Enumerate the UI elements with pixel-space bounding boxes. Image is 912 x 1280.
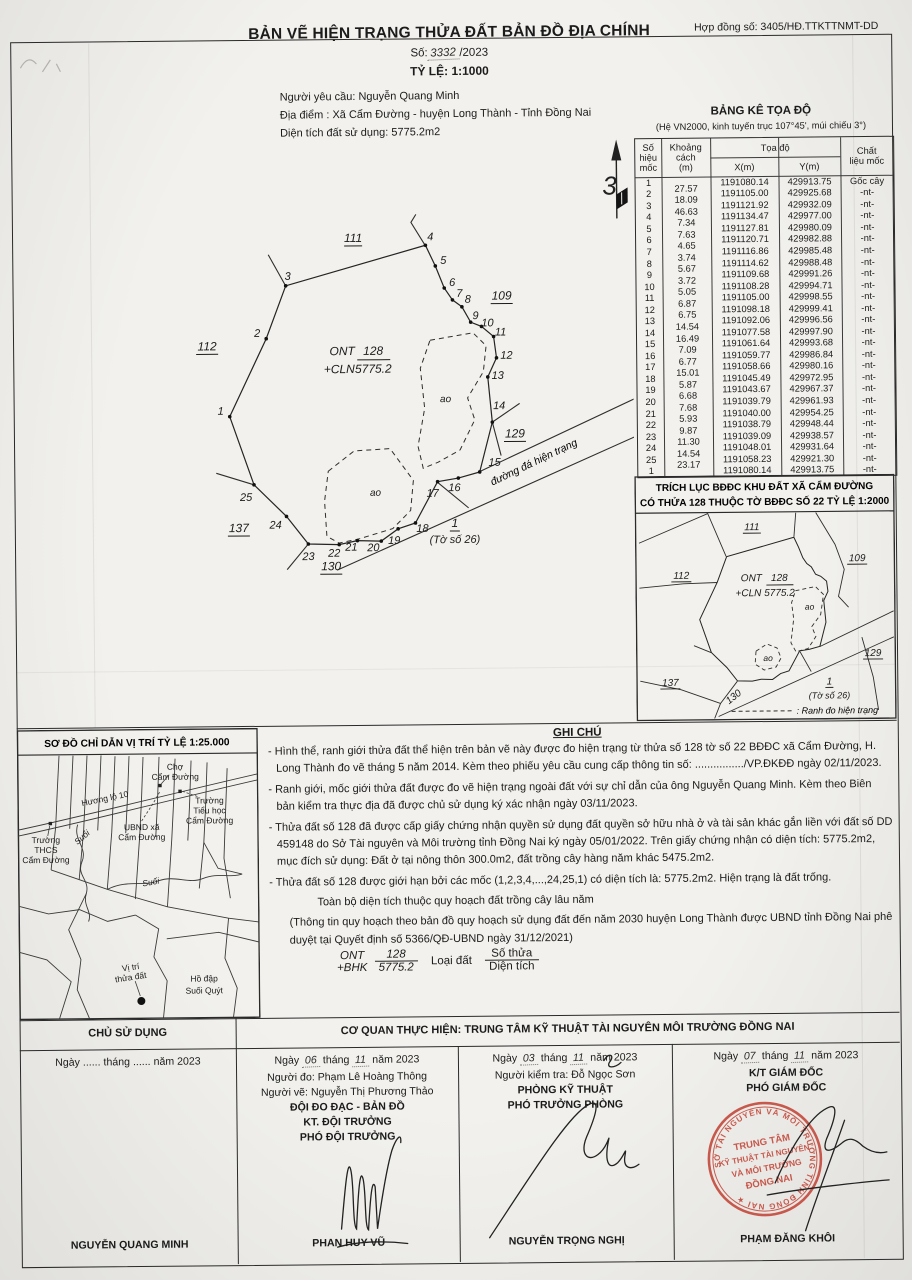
point-x: 1191080.14 <box>720 177 769 188</box>
point-material: -nt- <box>860 222 874 232</box>
segment-distance: 4.65 <box>678 241 696 251</box>
neighbor-parcel-label: 112 <box>673 571 689 582</box>
vertex-dot <box>264 337 268 341</box>
point-y: 429967.37 <box>789 384 833 395</box>
sketch-label: THCS <box>34 845 58 855</box>
vertex-dot <box>451 298 455 302</box>
point-x: 1191092.06 <box>722 315 771 326</box>
vertex-label: 9 <box>472 310 478 322</box>
sketch-title: SƠ ĐỒ CHỈ DẪN VỊ TRÍ TỶ LỆ 1:25.000 <box>44 735 230 750</box>
vertex-label: 25 <box>239 492 253 504</box>
point-x: 1191114.62 <box>722 257 769 268</box>
contract-number: Hợp đồng số: 3405/HĐ.TTKTTNMT-DD <box>694 20 894 34</box>
segment-distance: 23.17 <box>677 460 700 470</box>
point-id: 17 <box>645 362 655 372</box>
segment-distance: 7.09 <box>679 345 697 355</box>
boundary-line <box>640 680 720 704</box>
vertex-label: 3 <box>284 271 291 283</box>
scanned-document: BẢN VẼ HIỆN TRẠNG THỬA ĐẤT BẢN ĐỒ ĐỊA CH… <box>0 0 912 1280</box>
signature-underline <box>338 1242 408 1248</box>
segment-distance: 7.68 <box>679 402 697 412</box>
boundary-extension <box>411 214 425 245</box>
table-header-cell: Chấtliệu mốc <box>841 146 893 167</box>
road-edge <box>820 611 894 647</box>
vertex-label: 11 <box>495 326 507 338</box>
segment-distance: 27.57 <box>674 183 697 193</box>
segment-distance: 5.67 <box>678 264 696 274</box>
main-parcel-drawing: 111 112 109 129 137 130 1 (Tờ số 26) ao … <box>10 36 637 729</box>
point-material: -nt- <box>862 406 876 416</box>
neighbor-parcel-label: 130 <box>321 559 341 573</box>
segment-distance: 6.68 <box>679 391 697 401</box>
vertex-label: 17 <box>427 488 440 500</box>
point-material: -nt- <box>860 199 874 209</box>
vertex-label: 1 <box>218 406 224 418</box>
signature-phan-huy-vu <box>341 1137 402 1230</box>
vertex-dot <box>478 470 482 474</box>
stream-label: Suối <box>141 875 161 888</box>
point-material: -nt- <box>862 360 876 370</box>
point-material: -nt- <box>861 303 875 313</box>
road-label: đường đá hiện trạng <box>489 437 580 489</box>
vertex-label: 10 <box>481 317 494 329</box>
note-item: Toàn bộ diện tích thuộc quy hoạch đất tr… <box>265 889 893 912</box>
point-id: 20 <box>645 397 655 407</box>
point-material: -nt- <box>861 279 875 289</box>
neighbor-parcel-label: 137 <box>662 678 679 689</box>
point-x: 1191105.00 <box>722 292 770 303</box>
point-id: 11 <box>645 293 655 303</box>
formula-label: Loại đất <box>431 954 472 966</box>
vertex-dot <box>396 527 400 531</box>
note-item: - Hình thể, ranh giới thửa đất thể hiện … <box>264 738 892 779</box>
segment-distance: 6.75 <box>678 310 696 320</box>
parcel-polygon-group: 1234567891011121314151617181920212223242… <box>216 230 515 563</box>
segment-distance: 5.93 <box>679 414 697 424</box>
boundary-line <box>167 932 259 943</box>
neighbor-parcel-label: 129 <box>865 648 882 659</box>
segment-distance: 15.01 <box>676 368 699 378</box>
neighbor-parcel-label: 109 <box>492 288 512 302</box>
point-y: 429999.41 <box>789 303 833 314</box>
vertex-dot <box>460 305 464 309</box>
point-x: 1191109.68 <box>721 269 769 280</box>
extract-title-line2: CÓ THỬA 128 THUỘC TỜ BĐĐC SỐ 22 TỶ LỆ 1:… <box>640 493 890 509</box>
note-item: - Thửa đất số 128 được giới hạn bởi các … <box>265 868 893 891</box>
point-y: 429931.64 <box>790 441 834 452</box>
coord-table-title: BẢNG KÊ TỌA ĐỘ <box>631 104 891 118</box>
table-grid-line <box>710 156 840 158</box>
point-x: 1191043.67 <box>722 384 771 395</box>
segment-distance: 14.54 <box>677 448 700 458</box>
svg-text:5775.2: 5775.2 <box>764 588 795 599</box>
point-y: 429985.48 <box>788 245 832 256</box>
point-y: 429986.84 <box>789 349 833 360</box>
segment-distance: 6.87 <box>678 298 696 308</box>
vertex-label: 12 <box>500 350 512 362</box>
point-id: 21 <box>646 408 656 418</box>
vertex-dot <box>337 543 341 547</box>
segment-distance: 5.87 <box>679 379 697 389</box>
parcel-id-block: ONT 128 +CLN 5775.2 <box>324 344 392 377</box>
point-y: 429988.48 <box>788 257 832 268</box>
segment-distance: 9.87 <box>679 425 697 435</box>
sheet-parcel-label: 1 <box>451 516 458 530</box>
point-y: 429998.55 <box>789 291 833 302</box>
sheet-note-label: (Tờ số 26) <box>809 690 851 700</box>
vertex-dot <box>436 480 440 484</box>
table-grid-line <box>710 139 714 477</box>
segment-distance: 3.72 <box>678 275 696 285</box>
segment-distance: 16.49 <box>676 333 699 343</box>
svg-text:3: 3 <box>602 170 617 200</box>
vertex-label: 4 <box>427 231 433 243</box>
segment-distance: 14.54 <box>676 322 699 332</box>
svg-text:128: 128 <box>771 573 788 584</box>
extract-legend: : Ranh đo hiện trạng <box>732 705 879 716</box>
vertex-dot <box>457 476 461 480</box>
point-id: 14 <box>645 328 655 338</box>
vertex-label: 14 <box>493 400 505 412</box>
sketch-label: Tiểu học <box>193 805 226 815</box>
point-x: 1191038.79 <box>723 419 772 430</box>
point-id: 2 <box>646 189 651 199</box>
point-id: 12 <box>645 305 655 315</box>
vertex-dot <box>486 375 490 379</box>
point-y: 429948.44 <box>790 418 834 429</box>
vertex-dot <box>228 415 232 419</box>
point-y: 429980.16 <box>789 361 833 372</box>
formula-legend: Số thửa Diện tích <box>485 947 539 973</box>
pond-label: ao <box>370 488 382 499</box>
boundary-extension <box>268 255 285 286</box>
point-y: 429997.90 <box>789 326 833 337</box>
neighbor-parcel-label: 109 <box>849 553 866 564</box>
boundary-line <box>639 513 726 557</box>
vertex-label: 16 <box>448 482 461 494</box>
signature-pham-dang-khoi <box>774 1106 887 1183</box>
parcel-area: 5775.2 <box>355 362 392 376</box>
location-sketch-map: SƠ ĐỒ CHỈ DẪN VỊ TRÍ TỶ LỆ 1:25.000 <box>17 728 261 1020</box>
point-y: 429932.09 <box>788 199 832 210</box>
road-edge <box>336 436 637 570</box>
vertex-label: 18 <box>416 523 429 535</box>
sketch-label: Cẩm Đường <box>22 855 70 865</box>
point-y: 429994.71 <box>788 280 832 291</box>
road-line <box>106 756 116 889</box>
boundary-line <box>694 646 711 653</box>
point-material: Gốc cây <box>850 176 884 187</box>
point-material: -nt- <box>862 383 876 393</box>
point-id: 19 <box>645 385 655 395</box>
point-id: 4 <box>646 212 651 222</box>
segment-distance: 7.63 <box>677 229 695 239</box>
point-material: -nt- <box>861 245 875 255</box>
point-material: -nt- <box>863 453 877 463</box>
segment-distance: 11.30 <box>677 437 700 447</box>
leader-line <box>135 981 140 996</box>
point-x: 1191098.18 <box>721 304 770 315</box>
point-material: -nt- <box>862 395 876 405</box>
poi-dot <box>49 822 52 825</box>
point-material: -nt- <box>862 337 876 347</box>
point-id: 23 <box>646 432 656 442</box>
point-id: 15 <box>645 339 655 349</box>
vertex-label: 13 <box>492 370 505 382</box>
stream-line <box>107 874 242 889</box>
point-material: -nt- <box>863 441 877 451</box>
vertex-label: 20 <box>366 542 380 554</box>
point-x: 1191105.00 <box>721 188 769 199</box>
sketch-label: Cẩm Đường <box>186 815 234 825</box>
point-x: 1191061.64 <box>722 338 771 349</box>
poi-dot <box>178 790 181 793</box>
vertex-dot <box>285 515 289 519</box>
neighbor-parcel-label: 130 <box>724 688 744 707</box>
point-material: -nt- <box>861 291 875 301</box>
point-x: 1191039.79 <box>722 396 771 407</box>
table-grid-line <box>840 137 844 475</box>
signature-stroke <box>805 1120 846 1230</box>
legend-text: : Ranh đo hiện trạng <box>797 705 879 716</box>
boundary-line <box>816 512 849 607</box>
parcel-location-dot <box>137 997 145 1005</box>
point-id: 8 <box>647 259 652 269</box>
vertex-label: 15 <box>488 457 501 469</box>
point-id: 3 <box>646 201 651 211</box>
neighbor-parcel-label: 112 <box>197 339 217 353</box>
segment-distance: 5.05 <box>678 287 696 297</box>
boundary-line <box>204 842 242 874</box>
boundary-extension <box>216 473 254 485</box>
point-y: 429925.68 <box>788 188 832 199</box>
boundary-line <box>19 952 72 1019</box>
note-item: - Ranh giới, mốc giới thửa đất được đo v… <box>264 776 892 817</box>
point-id: 9 <box>647 270 652 280</box>
point-material: -nt- <box>860 187 874 197</box>
point-id: 16 <box>645 351 655 361</box>
sheet-note-label: (Tờ số 26) <box>430 534 481 546</box>
point-id: 6 <box>646 235 651 245</box>
neighbor-parcel-label: 111 <box>744 522 759 533</box>
neighbor-parcel-label: 137 <box>229 521 250 535</box>
point-x: 1191121.92 <box>721 200 769 211</box>
vertex-label: 24 <box>268 519 281 531</box>
boundary-line <box>794 513 796 537</box>
point-y: 429977.00 <box>788 211 832 222</box>
extract-map: TRÍCH LỤC BĐĐC KHU ĐẤT XÃ CẨM ĐƯỜNG CÓ T… <box>634 474 896 721</box>
point-id: 22 <box>646 420 656 430</box>
pond-label: ao <box>763 653 773 663</box>
parcel-number: 128 <box>363 344 383 358</box>
formula-fraction: 128 5775.2 <box>374 948 417 973</box>
point-material: -nt- <box>862 349 876 359</box>
point-material: -nt- <box>863 464 877 474</box>
boundary-line <box>639 582 717 588</box>
point-material: -nt- <box>862 429 876 439</box>
point-x: 1191058.66 <box>722 361 771 372</box>
table-grid-line <box>661 139 665 477</box>
segment-distance: 6.77 <box>679 356 697 366</box>
point-material: -nt- <box>861 256 875 266</box>
vertex-label: 6 <box>449 277 456 289</box>
note-item: - Thửa đất số 128 đã được cấp giấy chứng… <box>265 813 893 871</box>
point-material: -nt- <box>860 210 874 220</box>
road-edge <box>800 652 811 672</box>
boundary-line <box>225 918 238 1017</box>
road-line <box>97 755 102 830</box>
point-y: 429972.95 <box>789 372 833 383</box>
point-id: 1 <box>649 466 654 476</box>
pond-outline <box>417 333 487 469</box>
point-id: 1 <box>646 178 651 188</box>
pond-outline <box>790 586 824 651</box>
vertex-label: 23 <box>301 551 315 563</box>
svg-text:+CLN: +CLN <box>735 588 762 599</box>
vertex-dot <box>495 356 499 360</box>
signature-initials <box>604 1055 621 1067</box>
vertex-label: 21 <box>344 542 357 554</box>
point-x: 1191134.47 <box>721 211 769 222</box>
sketch-label: Suối Quýt <box>186 985 224 995</box>
table-grid-line <box>778 138 782 476</box>
poi-dot <box>158 784 161 787</box>
point-id: 13 <box>645 316 655 326</box>
point-id: 18 <box>645 374 655 384</box>
point-x: 1191058.23 <box>723 454 772 465</box>
signature-underline <box>767 1180 889 1195</box>
point-x: 1191116.86 <box>722 246 769 257</box>
point-id: 5 <box>646 224 651 234</box>
vertex-label: 2 <box>253 328 260 340</box>
signature-nguyen-trong-nghi <box>488 1103 639 1238</box>
signatures-ink <box>20 1042 902 1266</box>
segment-distance: 7.34 <box>677 218 695 228</box>
segment-distance: 46.63 <box>675 206 698 216</box>
vertex-dot <box>490 420 494 424</box>
point-x: 1191045.49 <box>722 373 771 384</box>
point-y: 429938.57 <box>790 430 834 441</box>
point-x: 1191120.71 <box>721 234 769 245</box>
sketch-label: thửa đất <box>114 970 147 985</box>
pond-label: ao <box>805 602 815 612</box>
vertex-dot <box>442 286 446 290</box>
north-arrow-icon: 3 <box>602 139 628 218</box>
point-y: 429913.75 <box>787 176 831 187</box>
point-y: 429921.30 <box>790 453 834 464</box>
sketch-label: Trường <box>195 795 224 805</box>
table-header-cell: Tọa độ <box>715 142 835 153</box>
coordinate-table: SốhiệumốcKhoảngcách(m)Tọa độX(m)Y(m)Chất… <box>634 136 897 478</box>
neighbor-parcel-label: 111 <box>344 231 362 245</box>
neighbor-parcel-label: 129 <box>505 426 525 440</box>
table-header-cell: Y(m) <box>779 161 839 172</box>
table-header-cell: X(m) <box>714 161 774 172</box>
vertex-dot <box>307 542 311 546</box>
point-material: -nt- <box>861 268 875 278</box>
point-x: 1191127.81 <box>721 223 769 234</box>
sketch-label: Trường <box>32 835 61 845</box>
note-item: (Thông tin quy hoạch theo bản đồ quy hoạ… <box>266 909 894 950</box>
vertex-dot <box>433 264 437 268</box>
vertex-dot <box>424 243 428 247</box>
point-id: 10 <box>644 282 654 292</box>
extract-title-line1: TRÍCH LỤC BĐĐC KHU ĐẤT XÃ CẨM ĐƯỜNG <box>656 479 874 494</box>
vertex-label: 19 <box>388 535 400 547</box>
signature-columns: Ngày ...... tháng ...... năm 2023 NGUYỄN… <box>0 0 906 4</box>
vertex-label: 5 <box>440 255 447 267</box>
parcel-formula: ONT +BHK 128 5775.2 Loại đất Số thửa Diệ… <box>333 947 539 974</box>
parcel-type2: +CLN <box>324 362 355 376</box>
formula-left: ONT +BHK <box>333 949 372 973</box>
vertex-label: 8 <box>465 294 472 306</box>
sketch-label: UBND xã <box>124 822 160 832</box>
point-y: 429954.25 <box>790 407 834 418</box>
vertex-dot <box>379 539 383 543</box>
point-id: 25 <box>646 455 656 465</box>
point-x: 1191048.01 <box>723 442 772 453</box>
point-x: 1191077.58 <box>722 327 771 338</box>
sketch-label: Chợ <box>167 762 184 772</box>
table-header-cell: Sốhiệumốc <box>635 143 661 174</box>
sketch-label: Cẩm Đường <box>152 771 200 781</box>
point-material: -nt- <box>861 233 875 243</box>
vertex-label: 22 <box>327 548 340 560</box>
point-material: -nt- <box>861 326 875 336</box>
svg-text:ONT: ONT <box>741 573 763 584</box>
parcel-type: ONT <box>329 344 356 358</box>
sketch-label: Hồ đập <box>190 973 218 983</box>
parcel-id-block: ONT 128 +CLN 5775.2 <box>735 573 795 600</box>
point-y: 429961.93 <box>790 395 834 406</box>
pond-label: ao <box>440 394 452 405</box>
notes-block: - Hình thể, ranh giới thửa đất thể hiện … <box>264 738 894 953</box>
road-line <box>78 756 88 880</box>
sheet-parcel-label: 1 <box>826 676 832 687</box>
vertex-dot <box>252 483 256 487</box>
footer-header-left: CHỦ SỬ DỤNG <box>20 1026 236 1040</box>
point-x: 1191039.09 <box>723 430 772 441</box>
sketch-label: Hương lộ 10 <box>80 789 129 808</box>
segment-distance: 18.09 <box>675 195 698 205</box>
point-y: 429996.56 <box>789 314 833 325</box>
point-x: 1191040.00 <box>722 407 771 418</box>
point-id: 24 <box>646 443 656 453</box>
point-x: 1191108.28 <box>722 280 770 291</box>
point-material: -nt- <box>862 418 876 428</box>
vertex-dot <box>284 284 288 288</box>
segment-distance: 3.74 <box>678 252 696 262</box>
vertex-label: 7 <box>456 288 463 300</box>
point-y: 429993.68 <box>789 338 833 349</box>
point-y: 429980.09 <box>788 222 832 233</box>
point-id: 7 <box>647 247 652 257</box>
point-material: -nt- <box>861 314 875 324</box>
point-x: 1191059.77 <box>722 350 771 361</box>
sketch-label: Cẩm Đường <box>118 832 166 842</box>
point-material: -nt- <box>862 372 876 382</box>
table-header-cell: Khoảngcách(m) <box>662 142 710 173</box>
point-y: 429991.26 <box>788 268 832 279</box>
point-y: 429982.88 <box>788 234 832 245</box>
